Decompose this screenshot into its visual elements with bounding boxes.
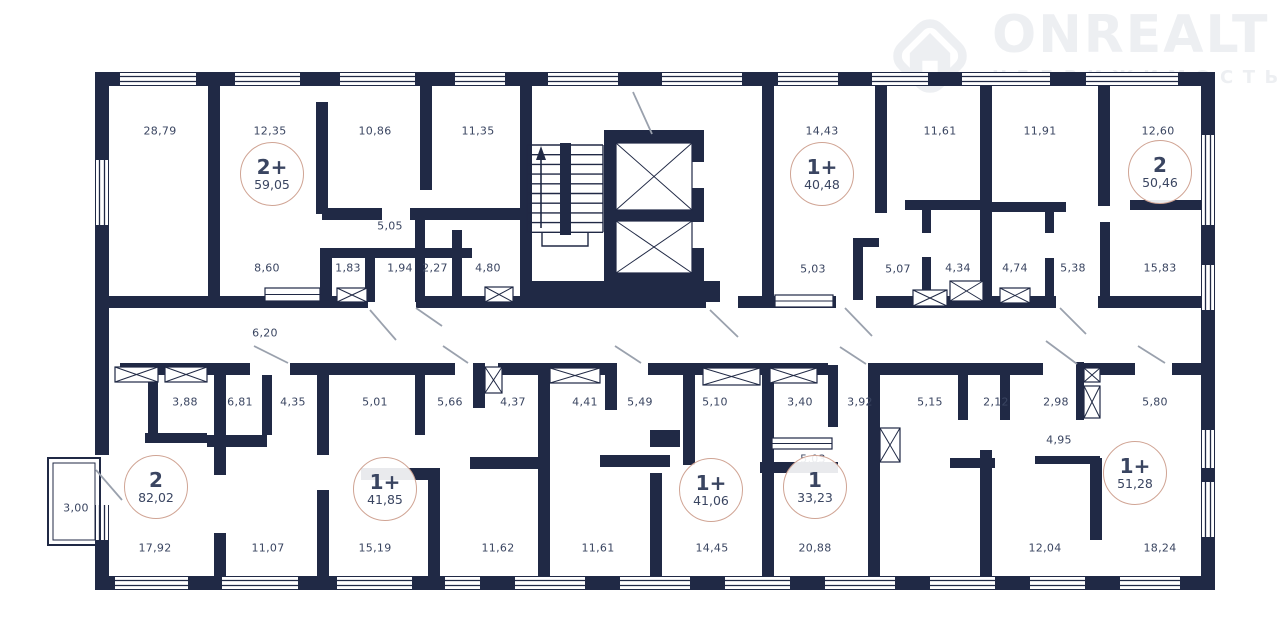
corridor-walls [109, 296, 1201, 375]
elevator-car [616, 221, 692, 273]
interior-walls-top [208, 86, 1201, 302]
interior-walls-bottom [145, 362, 1102, 576]
balcony [48, 458, 100, 545]
elevator-shaft [520, 130, 720, 302]
floor-plan-stage: ONREALT НЕДВИЖИМОСТЬ [0, 0, 1280, 622]
elevator-car [616, 143, 692, 210]
floor-plan-drawing [0, 0, 1280, 622]
stairs [520, 86, 603, 296]
